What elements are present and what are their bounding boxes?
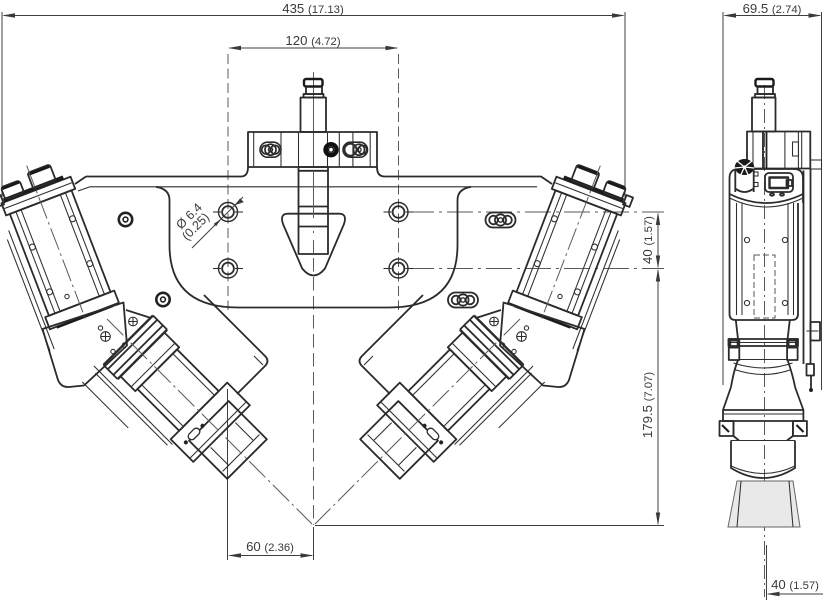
svg-text:435 (17.13): 435 (17.13) bbox=[282, 1, 344, 16]
svg-text:60 (2.36): 60 (2.36) bbox=[246, 539, 294, 554]
svg-text:40 (1.57): 40 (1.57) bbox=[771, 577, 819, 592]
svg-text:40 (1.57): 40 (1.57) bbox=[640, 216, 655, 264]
svg-text:179.5 (7.07): 179.5 (7.07) bbox=[640, 372, 655, 438]
svg-text:120 (4.72): 120 (4.72) bbox=[285, 33, 340, 48]
svg-text:69.5 (2.74): 69.5 (2.74) bbox=[743, 1, 802, 16]
